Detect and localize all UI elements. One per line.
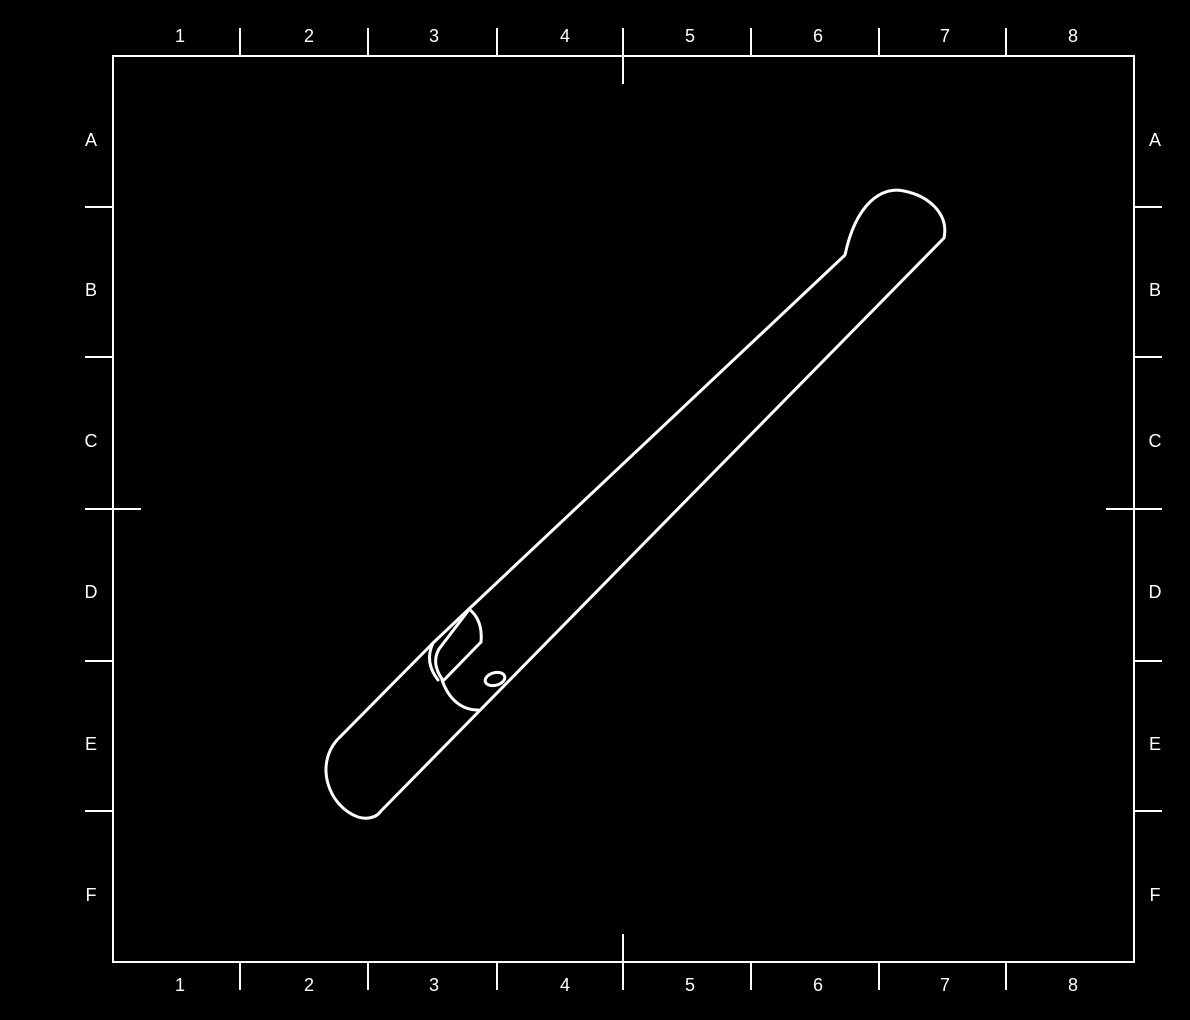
grid-row-label-left-C: C bbox=[85, 432, 98, 450]
part-notch-edge bbox=[469, 609, 481, 642]
grid-col-label-bottom-5: 5 bbox=[685, 976, 695, 994]
part-notch-edge bbox=[444, 642, 481, 680]
part-notch-edge bbox=[442, 680, 478, 710]
drawing-canvas bbox=[0, 0, 1190, 1020]
grid-row-label-right-B: B bbox=[1149, 281, 1161, 299]
grid-col-label-bottom-8: 8 bbox=[1068, 976, 1078, 994]
grid-col-label-top-1: 1 bbox=[175, 27, 185, 45]
grid-col-label-bottom-3: 3 bbox=[429, 976, 439, 994]
part-notch-edge bbox=[436, 649, 442, 679]
grid-col-label-top-5: 5 bbox=[685, 27, 695, 45]
grid-row-label-left-B: B bbox=[85, 281, 97, 299]
grid-col-label-bottom-1: 1 bbox=[175, 976, 185, 994]
grid-row-label-right-C: C bbox=[1149, 432, 1162, 450]
grid-col-label-top-2: 2 bbox=[304, 27, 314, 45]
grid-row-label-left-E: E bbox=[85, 735, 97, 753]
sheet-frame bbox=[113, 56, 1134, 962]
grid-row-label-right-A: A bbox=[1149, 131, 1161, 149]
grid-col-label-bottom-6: 6 bbox=[813, 976, 823, 994]
grid-col-label-top-3: 3 bbox=[429, 27, 439, 45]
grid-col-label-bottom-7: 7 bbox=[940, 976, 950, 994]
grid-col-label-top-7: 7 bbox=[940, 27, 950, 45]
grid-col-label-bottom-2: 2 bbox=[304, 976, 314, 994]
grid-col-label-top-6: 6 bbox=[813, 27, 823, 45]
part-outline bbox=[326, 190, 945, 818]
grid-row-label-right-D: D bbox=[1149, 583, 1162, 601]
cad-sheet: 1122334455667788AABBCCDDEEFF bbox=[0, 0, 1190, 1020]
grid-row-label-left-D: D bbox=[85, 583, 98, 601]
part-notch-edge bbox=[439, 611, 468, 649]
grid-col-label-top-4: 4 bbox=[560, 27, 570, 45]
grid-row-label-left-F: F bbox=[86, 886, 97, 904]
grid-row-label-right-F: F bbox=[1150, 886, 1161, 904]
grid-col-label-bottom-4: 4 bbox=[560, 976, 570, 994]
grid-col-label-top-8: 8 bbox=[1068, 27, 1078, 45]
grid-row-label-left-A: A bbox=[85, 131, 97, 149]
grid-row-label-right-E: E bbox=[1149, 735, 1161, 753]
